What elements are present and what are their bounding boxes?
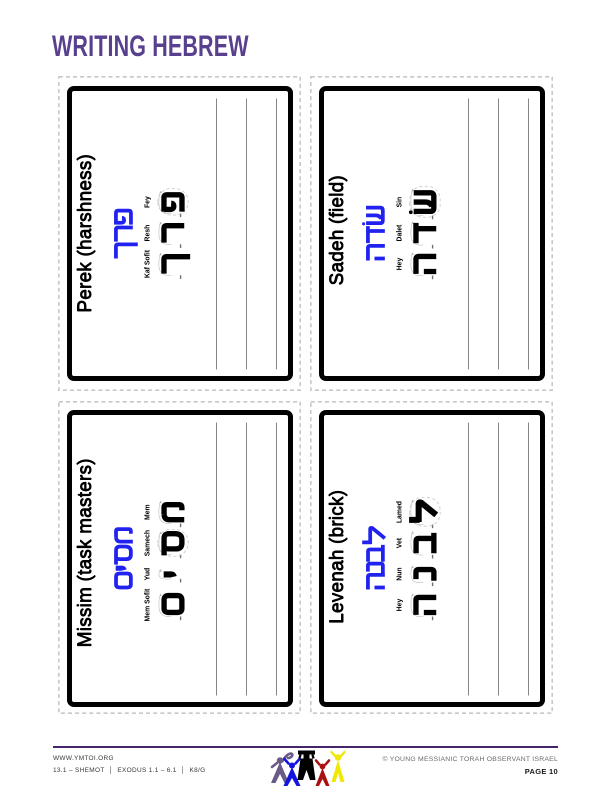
svg-text:Kaf Sofit: Kaf Sofit	[144, 249, 151, 278]
svg-text:Mem Sofit: Mem Sofit	[144, 587, 151, 620]
svg-text:Resh: Resh	[144, 224, 151, 241]
svg-text:Dalet: Dalet	[396, 224, 403, 241]
svg-text:Nun: Nun	[396, 567, 403, 580]
svg-text:Yud: Yud	[144, 567, 151, 580]
svg-text:Fey: Fey	[144, 196, 151, 208]
svg-text:Samech: Samech	[144, 529, 151, 555]
svg-text:Hey: Hey	[396, 598, 403, 611]
svg-text:Lamed: Lamed	[396, 500, 403, 522]
svg-text:Vet: Vet	[396, 536, 403, 547]
svg-text:Hey: Hey	[396, 257, 403, 270]
svg-text:Mem: Mem	[144, 504, 151, 520]
svg-text:Sin: Sin	[396, 196, 403, 207]
